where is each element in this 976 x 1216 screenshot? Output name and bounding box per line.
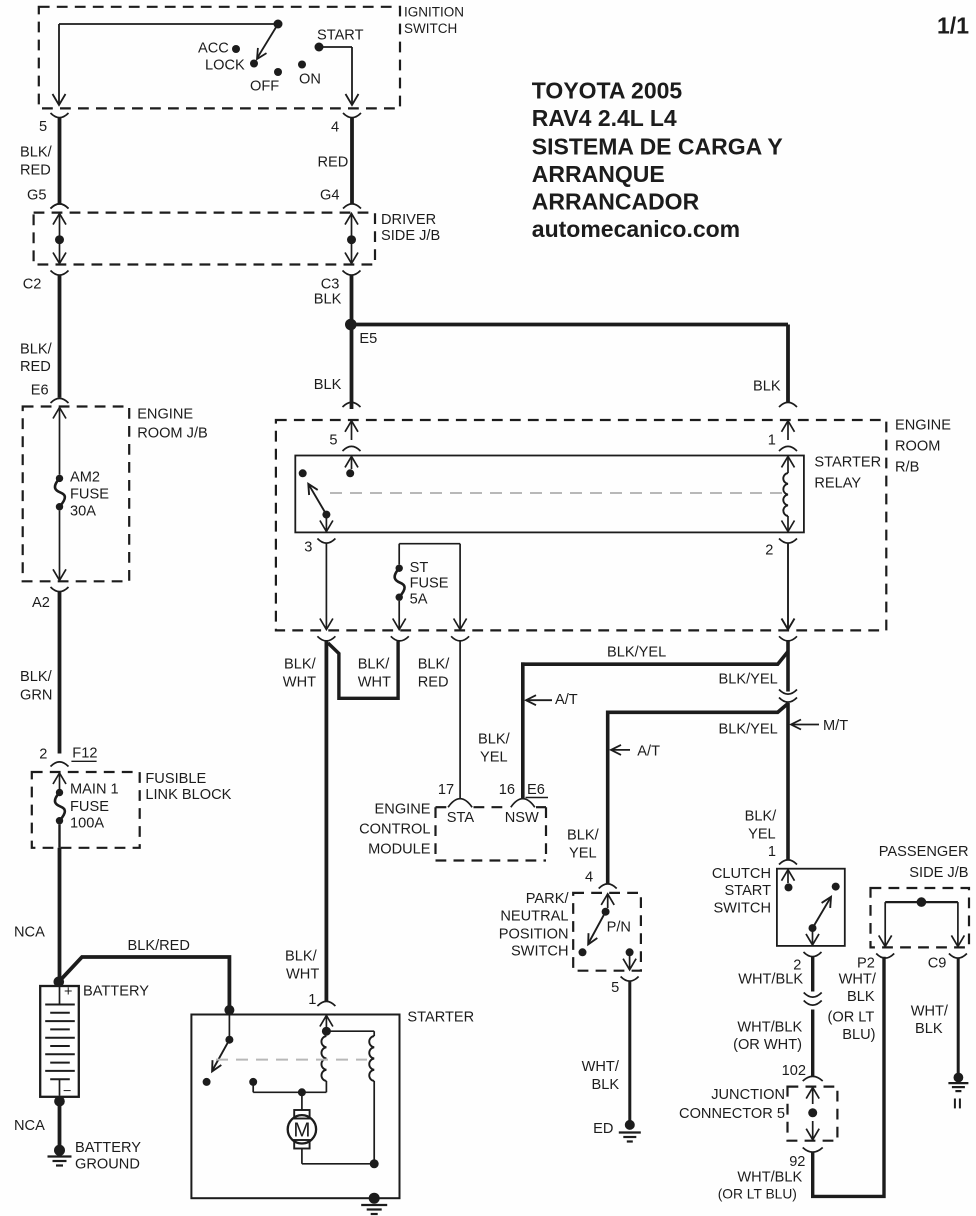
svg-text:SWITCH: SWITCH bbox=[511, 944, 569, 960]
svg-text:FUSE: FUSE bbox=[410, 576, 449, 592]
svg-text:G5: G5 bbox=[27, 188, 46, 204]
svg-text:LINK BLOCK: LINK BLOCK bbox=[145, 787, 231, 803]
svg-text:A2: A2 bbox=[32, 595, 50, 611]
svg-text:YEL: YEL bbox=[748, 827, 776, 843]
svg-text:P/N: P/N bbox=[607, 920, 631, 936]
svg-text:MODULE: MODULE bbox=[368, 842, 431, 858]
svg-text:LOCK: LOCK bbox=[205, 58, 245, 74]
svg-text:RED: RED bbox=[418, 675, 449, 691]
svg-text:102: 102 bbox=[782, 1063, 806, 1079]
svg-text:92: 92 bbox=[789, 1154, 805, 1170]
svg-text:BLK/: BLK/ bbox=[285, 949, 318, 965]
svg-text:WHT: WHT bbox=[286, 967, 319, 983]
svg-text:WHT/: WHT/ bbox=[839, 971, 877, 987]
svg-text:BLK/RED: BLK/RED bbox=[128, 938, 190, 954]
svg-text:SIDE J/B: SIDE J/B bbox=[381, 228, 440, 244]
svg-text:BLK/: BLK/ bbox=[745, 809, 778, 825]
svg-text:ARRANCADOR: ARRANCADOR bbox=[532, 189, 700, 215]
svg-text:ARRANQUE: ARRANQUE bbox=[532, 161, 665, 187]
svg-text:TOYOTA 2005: TOYOTA 2005 bbox=[532, 77, 683, 103]
svg-text:RED: RED bbox=[20, 163, 51, 179]
svg-text:M/T: M/T bbox=[823, 718, 848, 734]
svg-text:M: M bbox=[293, 1118, 310, 1141]
svg-text:P2: P2 bbox=[857, 955, 875, 971]
svg-text:NCA: NCA bbox=[14, 925, 45, 941]
svg-text:CLUTCH: CLUTCH bbox=[712, 866, 771, 882]
svg-text:ROOM J/B: ROOM J/B bbox=[137, 425, 208, 441]
svg-text:4: 4 bbox=[331, 120, 339, 136]
svg-text:BLU): BLU) bbox=[842, 1027, 875, 1043]
svg-text:3: 3 bbox=[304, 540, 312, 556]
svg-text:BLK: BLK bbox=[592, 1077, 620, 1093]
svg-text:SWITCH: SWITCH bbox=[404, 21, 457, 36]
svg-text:−: − bbox=[63, 1084, 71, 1100]
svg-text:CONNECTOR 5: CONNECTOR 5 bbox=[679, 1106, 785, 1122]
svg-text:5: 5 bbox=[329, 433, 337, 449]
svg-text:ED: ED bbox=[593, 1121, 613, 1137]
svg-text:PARK/: PARK/ bbox=[526, 891, 570, 907]
svg-text:BATTERY: BATTERY bbox=[75, 1140, 141, 1156]
svg-text:2: 2 bbox=[39, 746, 47, 762]
svg-text:JUNCTION: JUNCTION bbox=[711, 1087, 785, 1103]
svg-text:5: 5 bbox=[611, 980, 619, 996]
svg-text:WHT/BLK: WHT/BLK bbox=[737, 1020, 802, 1036]
svg-text:ACC: ACC bbox=[198, 41, 229, 57]
svg-text:PASSENGER: PASSENGER bbox=[879, 844, 969, 860]
svg-text:30A: 30A bbox=[70, 504, 96, 520]
svg-text:4: 4 bbox=[585, 869, 593, 885]
svg-text:STA: STA bbox=[447, 810, 475, 826]
svg-text:1: 1 bbox=[768, 433, 776, 449]
svg-text:NEUTRAL: NEUTRAL bbox=[500, 908, 568, 924]
svg-text:WHT: WHT bbox=[358, 675, 391, 691]
svg-text:GRN: GRN bbox=[20, 688, 52, 704]
svg-text:BLK/YEL: BLK/YEL bbox=[719, 721, 778, 737]
svg-text:BLK/: BLK/ bbox=[478, 732, 511, 748]
svg-text:SIDE J/B: SIDE J/B bbox=[909, 865, 968, 881]
svg-text:OFF: OFF bbox=[250, 79, 279, 95]
svg-text:BLK: BLK bbox=[753, 379, 781, 395]
svg-text:FUSE: FUSE bbox=[70, 487, 109, 503]
svg-text:BLK: BLK bbox=[915, 1021, 943, 1037]
svg-text:FUSE: FUSE bbox=[70, 799, 109, 815]
svg-text:YEL: YEL bbox=[569, 846, 597, 862]
svg-text:BLK/: BLK/ bbox=[20, 342, 53, 358]
svg-text:BLK/: BLK/ bbox=[20, 145, 53, 161]
svg-text:BLK: BLK bbox=[314, 292, 342, 308]
svg-text:+: + bbox=[64, 984, 72, 1000]
svg-text:BLK: BLK bbox=[314, 377, 342, 393]
svg-text:C3: C3 bbox=[321, 277, 340, 293]
svg-text:E6: E6 bbox=[527, 782, 545, 798]
svg-text:AM2: AM2 bbox=[70, 470, 100, 486]
svg-text:YEL: YEL bbox=[480, 750, 508, 766]
svg-text:BLK/YEL: BLK/YEL bbox=[719, 672, 778, 688]
svg-text:(OR LT: (OR LT bbox=[828, 1010, 875, 1026]
svg-text:WHT/: WHT/ bbox=[911, 1004, 949, 1020]
svg-text:(OR WHT): (OR WHT) bbox=[733, 1037, 802, 1053]
svg-text:1: 1 bbox=[768, 844, 776, 860]
svg-text:MAIN 1: MAIN 1 bbox=[70, 782, 119, 798]
svg-text:NSW: NSW bbox=[505, 810, 539, 826]
svg-text:ST: ST bbox=[410, 560, 429, 576]
svg-text:IGNITION: IGNITION bbox=[404, 4, 464, 19]
svg-text:C9: C9 bbox=[928, 955, 947, 971]
svg-text:WHT/BLK: WHT/BLK bbox=[737, 1169, 802, 1185]
svg-text:POSITION: POSITION bbox=[499, 926, 569, 942]
svg-text:DRIVER: DRIVER bbox=[381, 212, 436, 228]
svg-text:E5: E5 bbox=[359, 331, 377, 347]
svg-text:SISTEMA DE CARGA Y: SISTEMA DE CARGA Y bbox=[532, 133, 783, 159]
svg-text:ENGINE: ENGINE bbox=[895, 418, 951, 434]
svg-text:5: 5 bbox=[39, 119, 47, 135]
svg-text:FUSIBLE: FUSIBLE bbox=[145, 771, 206, 787]
svg-text:R/B: R/B bbox=[895, 460, 919, 476]
svg-text:RAV4 2.4L L4: RAV4 2.4L L4 bbox=[532, 105, 677, 131]
svg-text:BLK/: BLK/ bbox=[358, 657, 391, 673]
svg-text:NCA: NCA bbox=[14, 1118, 45, 1134]
svg-text:START: START bbox=[725, 883, 772, 899]
svg-text:STARTER: STARTER bbox=[407, 1010, 474, 1026]
svg-text:BLK/: BLK/ bbox=[418, 657, 451, 673]
svg-text:1: 1 bbox=[308, 992, 316, 1008]
svg-text:16: 16 bbox=[499, 782, 515, 798]
svg-text:C2: C2 bbox=[23, 277, 42, 293]
svg-text:E6: E6 bbox=[31, 383, 49, 399]
svg-text:RED: RED bbox=[318, 155, 349, 171]
svg-text:5A: 5A bbox=[410, 591, 428, 607]
svg-text:BLK/YEL: BLK/YEL bbox=[607, 645, 666, 661]
svg-text:G4: G4 bbox=[320, 188, 339, 204]
svg-text:(OR LT BLU): (OR LT BLU) bbox=[718, 1186, 797, 1201]
svg-text:17: 17 bbox=[438, 782, 454, 798]
svg-text:RED: RED bbox=[20, 359, 51, 375]
svg-text:START: START bbox=[317, 28, 364, 44]
svg-text:BLK: BLK bbox=[847, 989, 875, 1005]
svg-text:BLK/: BLK/ bbox=[20, 669, 53, 685]
svg-text:CONTROL: CONTROL bbox=[359, 822, 430, 838]
svg-text:WHT/: WHT/ bbox=[582, 1059, 620, 1075]
svg-text:BLK/: BLK/ bbox=[567, 828, 600, 844]
svg-text:A/T: A/T bbox=[555, 692, 578, 708]
svg-text:WHT: WHT bbox=[283, 675, 316, 691]
svg-text:F12: F12 bbox=[72, 746, 97, 762]
svg-text:RELAY: RELAY bbox=[814, 475, 861, 491]
svg-text:ROOM: ROOM bbox=[895, 439, 940, 455]
svg-text:ON: ON bbox=[299, 72, 321, 88]
svg-text:100A: 100A bbox=[70, 815, 104, 831]
svg-text:GROUND: GROUND bbox=[75, 1156, 140, 1172]
svg-text:1/1: 1/1 bbox=[937, 12, 969, 38]
svg-text:STARTER: STARTER bbox=[814, 454, 881, 470]
svg-text:SWITCH: SWITCH bbox=[713, 901, 771, 917]
svg-text:A/T: A/T bbox=[637, 743, 660, 759]
svg-text:WHT/BLK: WHT/BLK bbox=[738, 971, 803, 987]
svg-text:BLK/: BLK/ bbox=[284, 657, 317, 673]
svg-text:2: 2 bbox=[765, 543, 773, 559]
svg-text:automecanico.com: automecanico.com bbox=[532, 216, 740, 242]
svg-text:BATTERY: BATTERY bbox=[83, 983, 149, 999]
svg-text:ENGINE: ENGINE bbox=[375, 801, 431, 817]
svg-text:ENGINE: ENGINE bbox=[137, 407, 193, 423]
